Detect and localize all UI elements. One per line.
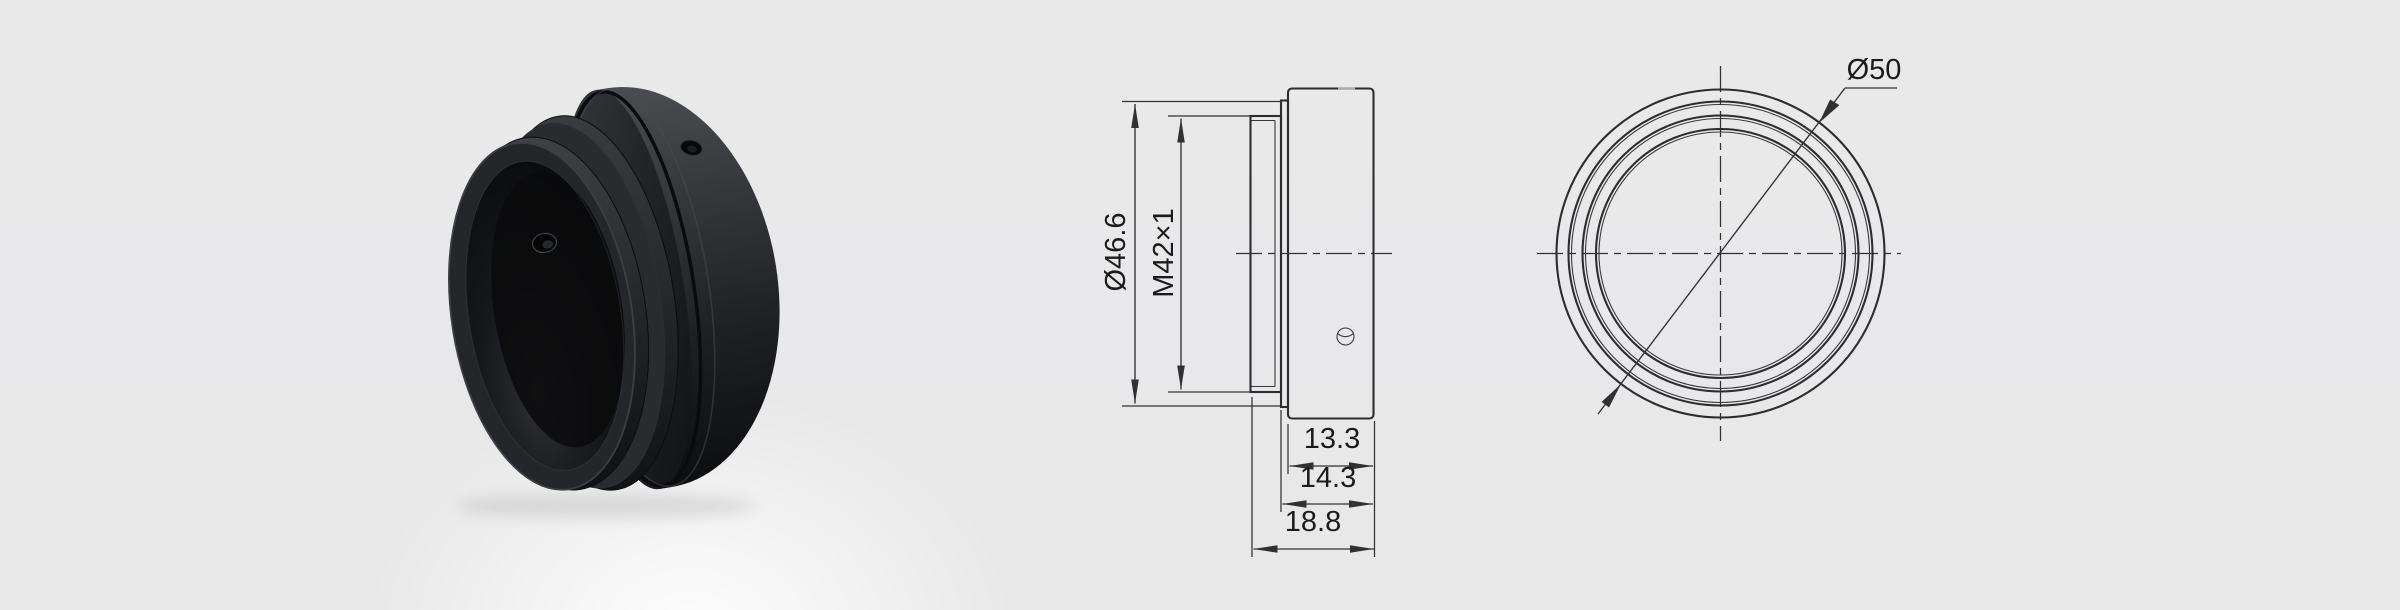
dim-arrow-dia50-lower (1602, 384, 1621, 408)
adapter-ring-drawing-page: Ø46.6 M42×1 13.3 14.3 18.8 (0, 0, 2400, 610)
dim-label-dia50: Ø50 (1847, 54, 1902, 86)
dim-label-133: 13.3 (1304, 423, 1360, 455)
dim-label-143: 14.3 (1300, 462, 1356, 494)
set-screw-slot (1338, 334, 1354, 337)
product-photo-3d-render (419, 67, 807, 519)
dim-arrow-dia50-upper (1819, 100, 1839, 124)
side-view: Ø46.6 M42×1 13.3 14.3 18.8 (1100, 89, 1392, 558)
drawing-canvas: Ø46.6 M42×1 13.3 14.3 18.8 (0, 0, 2400, 610)
dim-label-188: 18.8 (1285, 506, 1341, 538)
dim-label-dia466: Ø46.6 (1100, 213, 1132, 292)
dim-label-m42: M42×1 (1148, 208, 1180, 297)
dim-line-dia50-diagonal (1598, 88, 1845, 414)
product-shadow (456, 493, 756, 519)
front-view: Ø50 (1537, 54, 1901, 441)
